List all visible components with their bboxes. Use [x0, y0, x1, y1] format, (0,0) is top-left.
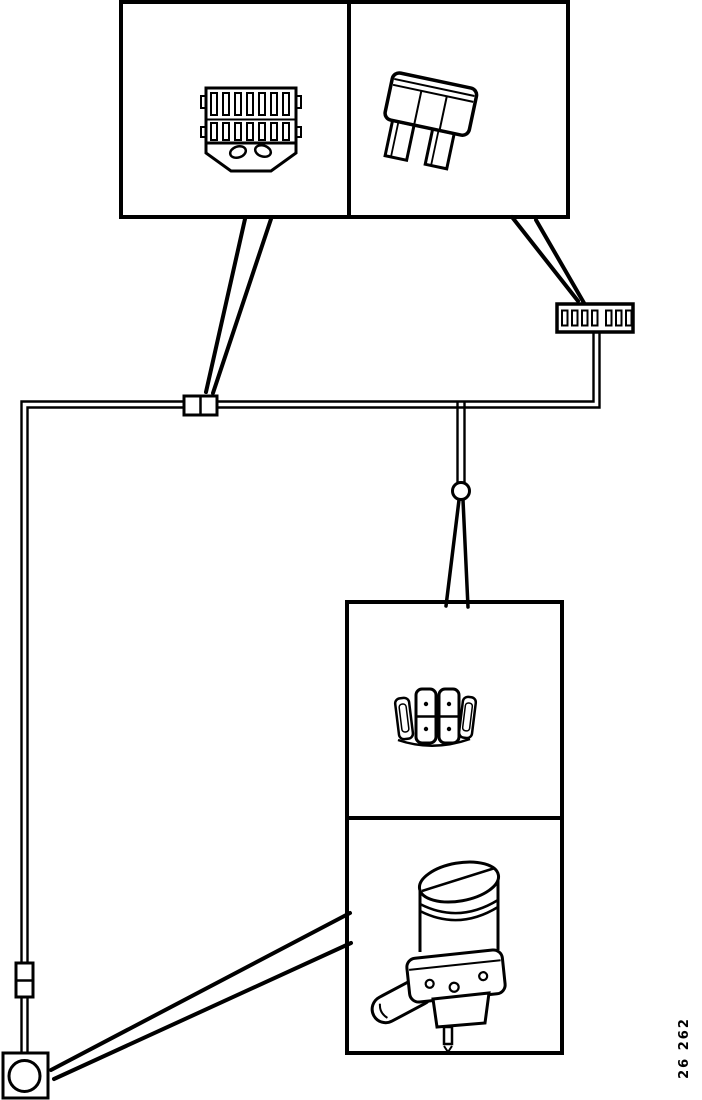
fuse-slot — [572, 311, 578, 326]
leader-switch-2 — [463, 500, 468, 607]
leader-fuse-1 — [512, 217, 578, 301]
pump-base-hole — [425, 979, 434, 988]
switch-dot — [424, 702, 428, 706]
ground-terminal — [9, 1061, 40, 1092]
fuse-holder-slots — [562, 311, 632, 326]
leader-pump-1 — [51, 913, 350, 1070]
switch-button-mid-right — [439, 689, 459, 743]
fuse-slot — [616, 311, 622, 326]
pump-base-body — [406, 949, 506, 1003]
pump-lower-block — [433, 993, 489, 1027]
ground-connector-symbol — [3, 1053, 48, 1098]
figure-number: 26 262 — [677, 1011, 693, 1085]
connector-illustration — [201, 88, 301, 171]
leader-fuse-2 — [536, 220, 584, 303]
wire-junction-symbol — [453, 483, 470, 500]
leader-connector-1 — [206, 219, 245, 392]
inline-connector-symbol-left — [16, 963, 33, 997]
inline-connector-symbol — [184, 396, 217, 415]
switch-dot — [424, 727, 428, 731]
fuse-slot — [562, 311, 568, 326]
leader-pump-2 — [54, 943, 351, 1079]
pump-base — [406, 949, 506, 1003]
diagram-artwork — [0, 0, 702, 1100]
switch-dot — [447, 702, 451, 706]
pump-bottom-stem — [444, 1027, 452, 1044]
switch-button-mid-left — [416, 689, 436, 743]
switch-illustration — [395, 689, 477, 746]
fuse-holder-symbol — [557, 304, 633, 332]
fuse-slot — [626, 311, 632, 326]
leader-connector-2 — [213, 219, 271, 393]
pump-base-hole — [449, 982, 459, 992]
fuse-slot — [606, 311, 612, 326]
switch-dot — [447, 727, 451, 731]
fuse-slot — [592, 311, 598, 326]
wiring-locator-diagram: 26 262 — [0, 0, 702, 1100]
pump-base-hole — [479, 972, 488, 981]
fuse-slot — [582, 311, 588, 326]
leader-switch-1 — [446, 500, 459, 606]
